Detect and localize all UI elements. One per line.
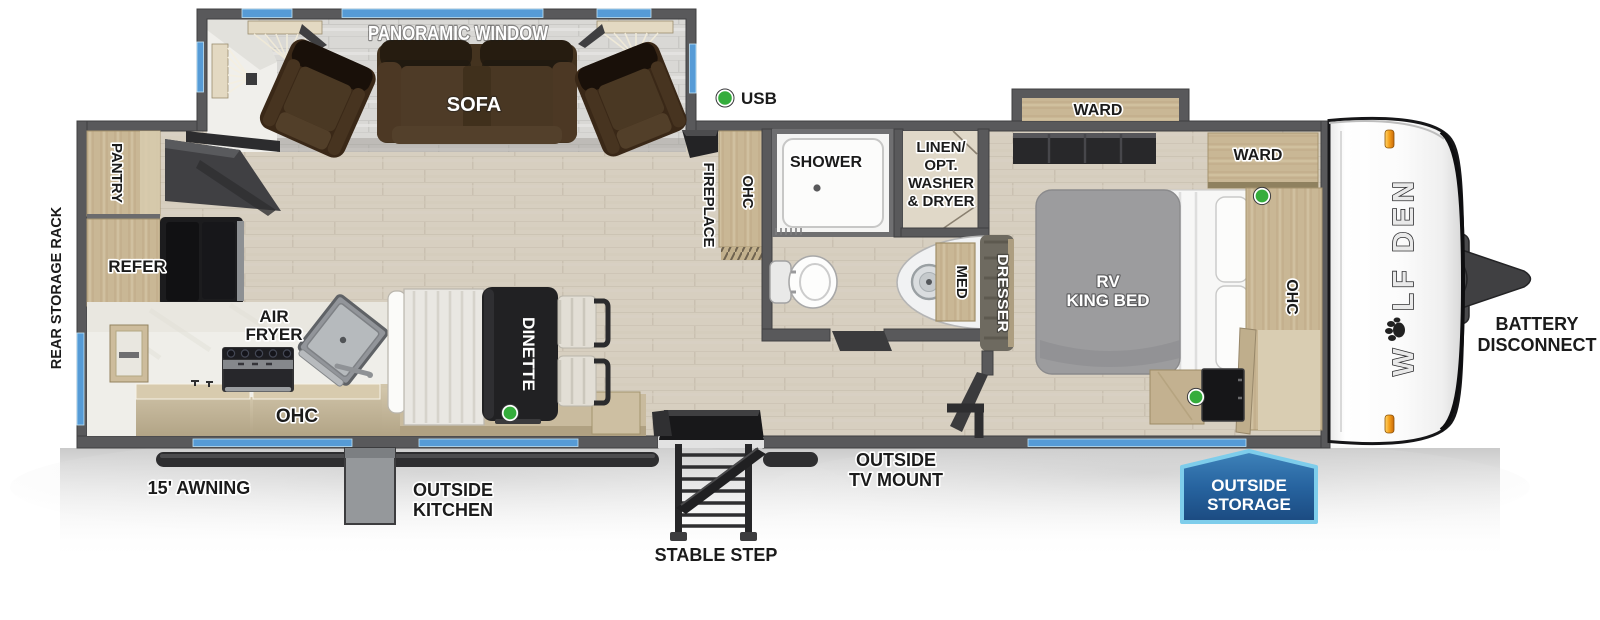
svg-text:OUTSIDE: OUTSIDE	[1211, 476, 1287, 495]
svg-text:SOFA: SOFA	[447, 94, 501, 116]
svg-text:AIR: AIR	[259, 307, 288, 326]
svg-text:STORAGE: STORAGE	[1207, 495, 1291, 514]
svg-text:KITCHEN: KITCHEN	[413, 500, 493, 520]
svg-text:& DRYER: & DRYER	[908, 193, 975, 210]
svg-text:REFER: REFER	[108, 257, 166, 276]
svg-text:LINEN/: LINEN/	[916, 139, 966, 156]
svg-text:OPT.: OPT.	[924, 157, 957, 174]
svg-text:OHC: OHC	[276, 406, 319, 427]
svg-text:USB: USB	[741, 89, 777, 108]
svg-text:STABLE STEP: STABLE STEP	[655, 545, 778, 565]
svg-text:SHOWER: SHOWER	[790, 154, 862, 171]
svg-text:PANTRY: PANTRY	[108, 143, 125, 203]
svg-text:OHC: OHC	[1283, 279, 1300, 315]
svg-text:W: W	[1388, 347, 1420, 376]
svg-text:WASHER: WASHER	[908, 175, 974, 192]
svg-text:LF DEN: LF DEN	[1388, 176, 1420, 311]
svg-text:WARD: WARD	[1234, 147, 1283, 164]
svg-text:OHC: OHC	[739, 175, 756, 209]
svg-text:FIREPLACE: FIREPLACE	[700, 162, 717, 247]
svg-text:15' AWNING: 15' AWNING	[148, 478, 251, 498]
svg-text:DINETTE: DINETTE	[519, 317, 538, 391]
svg-text:MED: MED	[953, 265, 970, 299]
svg-text:KING BED: KING BED	[1066, 291, 1149, 310]
svg-text:PANORAMIC WINDOW: PANORAMIC WINDOW	[368, 23, 548, 45]
svg-text:TV MOUNT: TV MOUNT	[849, 470, 943, 490]
svg-text:DRESSER: DRESSER	[994, 254, 1011, 332]
svg-text:DISCONNECT: DISCONNECT	[1477, 335, 1596, 355]
svg-text:OUTSIDE: OUTSIDE	[413, 480, 493, 500]
svg-text:WARD: WARD	[1074, 102, 1123, 119]
svg-text:OUTSIDE: OUTSIDE	[856, 450, 936, 470]
svg-text:REAR STORAGE RACK: REAR STORAGE RACK	[49, 206, 65, 369]
svg-text:FRYER: FRYER	[246, 325, 303, 344]
svg-text:BATTERY: BATTERY	[1496, 314, 1579, 334]
svg-text:RV: RV	[1096, 272, 1120, 291]
